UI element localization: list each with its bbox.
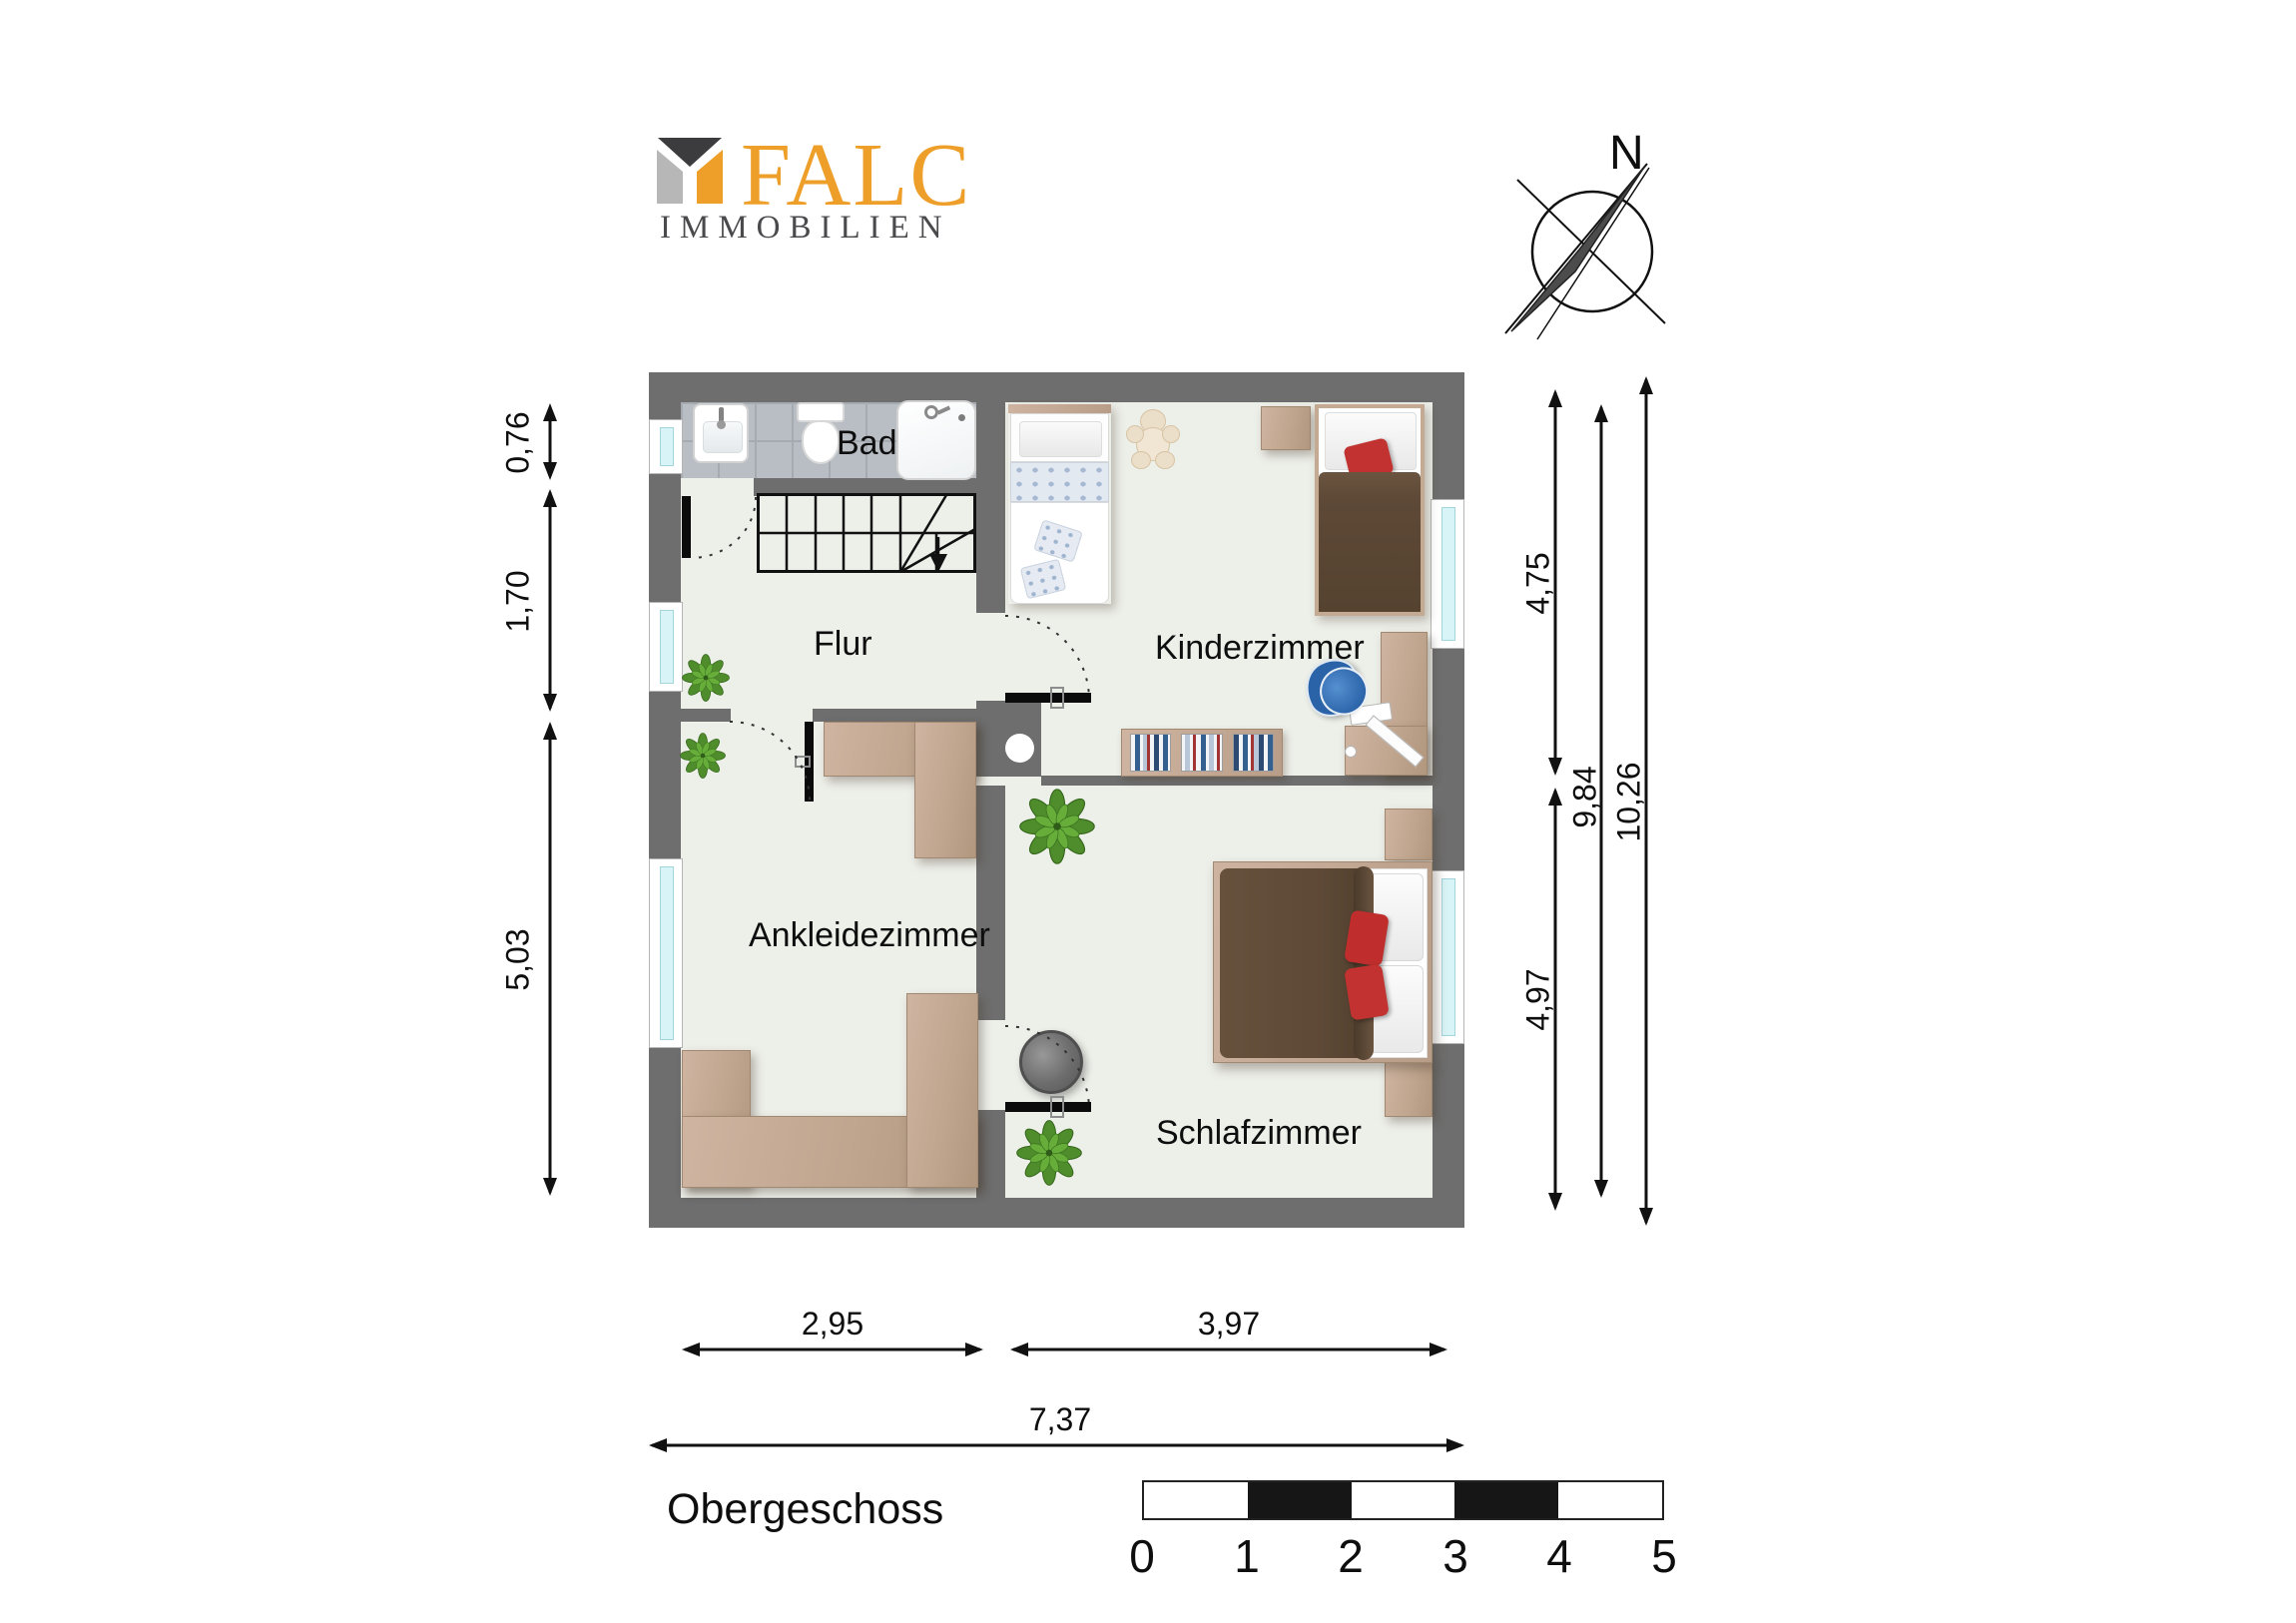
nightstand-bottom: [1385, 1061, 1433, 1117]
wall-flur-ankleide-left: [681, 709, 731, 722]
chimney-flue: [1005, 734, 1034, 763]
laundry-basket: [1019, 1030, 1083, 1094]
plant-icon-flur: [682, 654, 730, 702]
dim-left-1-70: [543, 489, 557, 712]
dim-label-7-37: 7,37: [980, 1401, 1140, 1438]
wardrobe-u-right: [906, 993, 978, 1188]
logo-subtitle: IMMOBILIEN: [660, 210, 951, 247]
door-leaf-kinder: [1005, 693, 1091, 703]
window-schlafzimmer: [1431, 870, 1464, 1044]
window-flur: [649, 602, 683, 692]
single-bed-white: [1008, 404, 1111, 604]
window-bad: [649, 419, 683, 474]
plant-icon-ankleide: [680, 733, 726, 779]
scale-tick-1: 1: [1217, 1529, 1277, 1583]
scale-tick-2: 2: [1321, 1529, 1381, 1583]
dim-label-4-97: 4,97: [1520, 920, 1557, 1080]
dim-label-0-76: 0,76: [500, 363, 537, 523]
scale-segment: [1248, 1482, 1352, 1518]
wall-flur-kinderzimmer: [976, 402, 1005, 613]
bookshelf: [1121, 729, 1283, 777]
shower: [896, 400, 976, 480]
nightstand-top: [1385, 809, 1433, 860]
scale-segment: [1558, 1482, 1662, 1518]
dim-bottom-3-97: [1010, 1343, 1447, 1356]
teddy-bear-icon: [1126, 409, 1178, 467]
dim-label-4-75: 4,75: [1520, 504, 1557, 664]
window-kinderzimmer: [1431, 499, 1464, 649]
door-handle-schlaf: [1050, 1096, 1064, 1118]
scale-segment: [1144, 1482, 1248, 1518]
scale-tick-5: 5: [1634, 1529, 1694, 1583]
door-leaf-schlaf: [1005, 1102, 1091, 1112]
scale-segment: [1454, 1482, 1558, 1518]
scale-tick-3: 3: [1426, 1529, 1485, 1583]
scale-segment: [1352, 1482, 1455, 1518]
compass-icon: [1497, 140, 1707, 349]
door-handle-ankleide: [795, 756, 811, 768]
dim-left-5-03: [543, 722, 557, 1196]
wall-outer-top: [649, 372, 1464, 402]
room-label-ankleide: Ankleidezimmer: [749, 916, 990, 955]
scale-tick-0: 0: [1112, 1529, 1172, 1583]
dim-bottom-2-95: [682, 1343, 983, 1356]
page-title: Obergeschoss: [667, 1485, 943, 1534]
wall-flur-ankleide-right: [813, 709, 976, 722]
falc-logo-icon: [657, 138, 723, 204]
dim-label-2-95: 2,95: [753, 1306, 912, 1343]
wall-bad-bottom: [754, 478, 1005, 496]
wall-outer-bottom: [649, 1198, 1464, 1228]
room-label-bad: Bad: [837, 424, 897, 463]
room-label-flur: Flur: [814, 625, 872, 664]
room-label-kinder: Kinderzimmer: [1155, 629, 1365, 668]
wall-outer-left: [649, 372, 681, 1228]
dim-bottom-7-37: [649, 1438, 1464, 1452]
dim-label-10-26: 10,26: [1611, 723, 1648, 882]
mouse: [1345, 746, 1357, 758]
plant-icon-schlaf-2: [1016, 1120, 1082, 1186]
wardrobe-l-right: [914, 722, 976, 858]
side-table: [1261, 406, 1311, 450]
scale-bar: [1142, 1480, 1664, 1520]
dim-label-5-03: 5,03: [500, 880, 537, 1040]
dim-left-0-76: [543, 403, 557, 480]
double-bed: [1213, 861, 1433, 1063]
wall-ankleide-schlaf-upper: [976, 786, 1005, 1020]
scale-tick-4: 4: [1529, 1529, 1589, 1583]
dim-label-3-97: 3,97: [1149, 1306, 1309, 1343]
window-ankleide: [649, 858, 683, 1048]
floor-plan-page: FALC IMMOBILIEN N: [0, 0, 2296, 1623]
room-label-schlaf: Schlafzimmer: [1156, 1114, 1362, 1153]
dim-label-1-70: 1,70: [500, 522, 537, 682]
compass-north-label: N: [1609, 126, 1644, 181]
washbasin: [693, 403, 749, 463]
wall-kinder-schlaf: [1041, 776, 1435, 786]
dim-label-9-84: 9,84: [1567, 718, 1604, 877]
plant-icon-schlaf-1: [1019, 789, 1095, 864]
door-handle-kinder: [1050, 687, 1064, 709]
door-leaf-bad: [682, 496, 691, 558]
wall-ankleide-schlaf-lower: [976, 1110, 1005, 1198]
single-bed-brown: [1315, 404, 1425, 616]
